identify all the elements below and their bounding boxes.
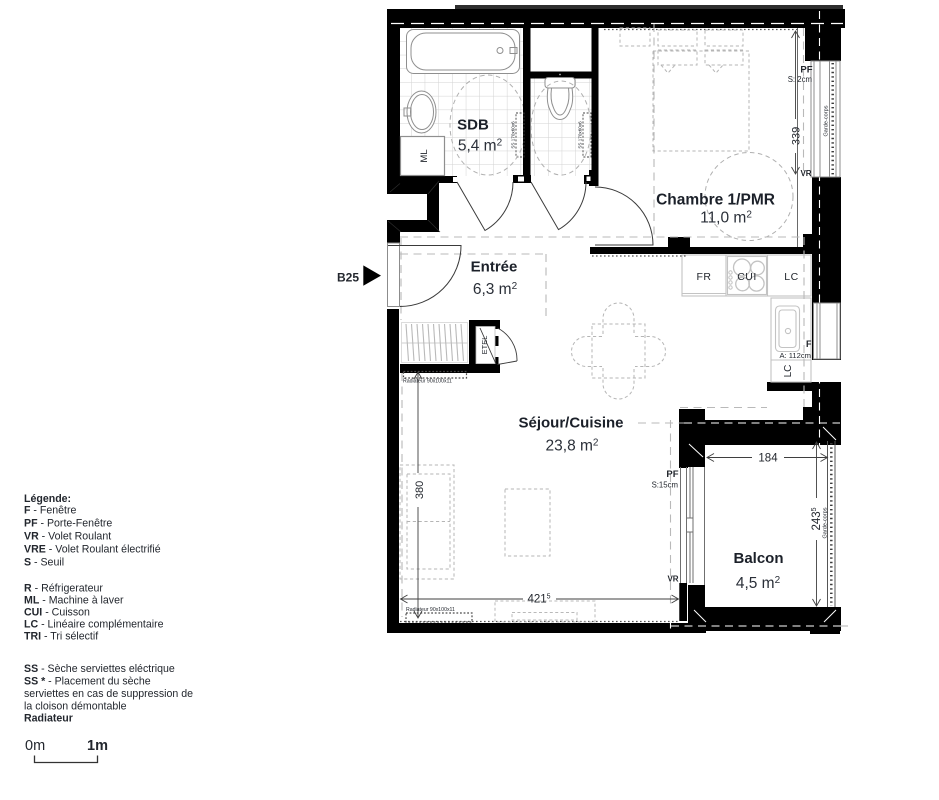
svg-text:Chambre 1/PMR: Chambre 1/PMR: [656, 192, 775, 209]
svg-text:Légende:: Légende:: [24, 493, 71, 505]
svg-text:SS 170x60x6: SS 170x60x6: [578, 121, 583, 149]
svg-text:6,3 m2: 6,3 m2: [473, 281, 518, 298]
svg-text:S - Seuil: S - Seuil: [24, 557, 64, 569]
svg-text:SDB: SDB: [457, 117, 489, 134]
svg-text:4,5 m2: 4,5 m2: [736, 575, 781, 592]
svg-text:Radiateur: Radiateur: [24, 713, 73, 725]
svg-text:VR - Volet Roulant: VR - Volet Roulant: [24, 530, 111, 542]
svg-text:F: F: [806, 339, 812, 349]
svg-text:A: 112cm: A: 112cm: [779, 351, 811, 360]
svg-text:0m: 0m: [25, 738, 45, 754]
svg-text:Radiateur 90x100x11: Radiateur 90x100x11: [406, 607, 455, 613]
svg-text:SS * - Placement du sèche: SS * - Placement du sèche: [24, 675, 151, 687]
svg-text:SS 170x60x6: SS 170x60x6: [511, 121, 516, 149]
svg-text:Garde-corps: Garde-corps: [824, 105, 830, 136]
svg-text:VRE - Volet Roulant électrifié: VRE - Volet Roulant électrifié: [24, 544, 161, 556]
svg-text:CUI - Cuisson: CUI - Cuisson: [24, 607, 90, 619]
svg-text:B25: B25: [337, 271, 359, 285]
svg-text:380: 380: [414, 481, 426, 499]
svg-text:ML: ML: [419, 149, 430, 162]
svg-text:la cloison démontable: la cloison démontable: [24, 701, 127, 713]
svg-text:TRI - Tri sélectif: TRI - Tri sélectif: [24, 631, 98, 643]
svg-text:S: 2cm: S: 2cm: [788, 75, 812, 84]
svg-text:SS - Sèche serviettes eléctriq: SS - Sèche serviettes eléctrique: [24, 663, 175, 675]
svg-text:VR: VR: [800, 169, 811, 178]
svg-text:23,8 m2: 23,8 m2: [546, 438, 599, 455]
svg-text:5,4 m2: 5,4 m2: [458, 138, 503, 155]
svg-text:S:15cm: S:15cm: [652, 481, 678, 490]
svg-text:R - Réfrigerateur: R - Réfrigerateur: [24, 582, 103, 594]
svg-text:Garde-corps: Garde-corps: [823, 507, 829, 538]
svg-text:1m: 1m: [87, 738, 108, 754]
svg-text:Balcon: Balcon: [733, 550, 783, 567]
svg-text:LC: LC: [784, 271, 798, 283]
svg-text:Séjour/Cuisine: Séjour/Cuisine: [518, 415, 623, 432]
svg-text:LC: LC: [783, 365, 794, 378]
svg-text:FR: FR: [697, 271, 712, 283]
svg-text:PF: PF: [800, 65, 812, 76]
svg-text:339: 339: [791, 127, 803, 145]
svg-text:LC - Linéaire complémentaire: LC - Linéaire complémentaire: [24, 619, 164, 631]
svg-text:VR: VR: [667, 575, 678, 584]
svg-text:184: 184: [758, 453, 778, 465]
svg-text:PF - Porte-Fenêtre: PF - Porte-Fenêtre: [24, 517, 112, 529]
svg-text:ML - Machine à laver: ML - Machine à laver: [24, 595, 124, 607]
svg-text:CUI: CUI: [737, 271, 757, 283]
svg-text:Entrée: Entrée: [471, 259, 518, 276]
svg-text:PF: PF: [666, 469, 678, 480]
svg-text:Radiateur 90x100x11: Radiateur 90x100x11: [403, 379, 452, 385]
svg-text:11,0 m2: 11,0 m2: [700, 210, 752, 227]
svg-text:F - Fenêtre: F - Fenêtre: [24, 504, 77, 516]
svg-text:serviettes en cas de suppressi: serviettes en cas de suppression de: [24, 688, 193, 700]
